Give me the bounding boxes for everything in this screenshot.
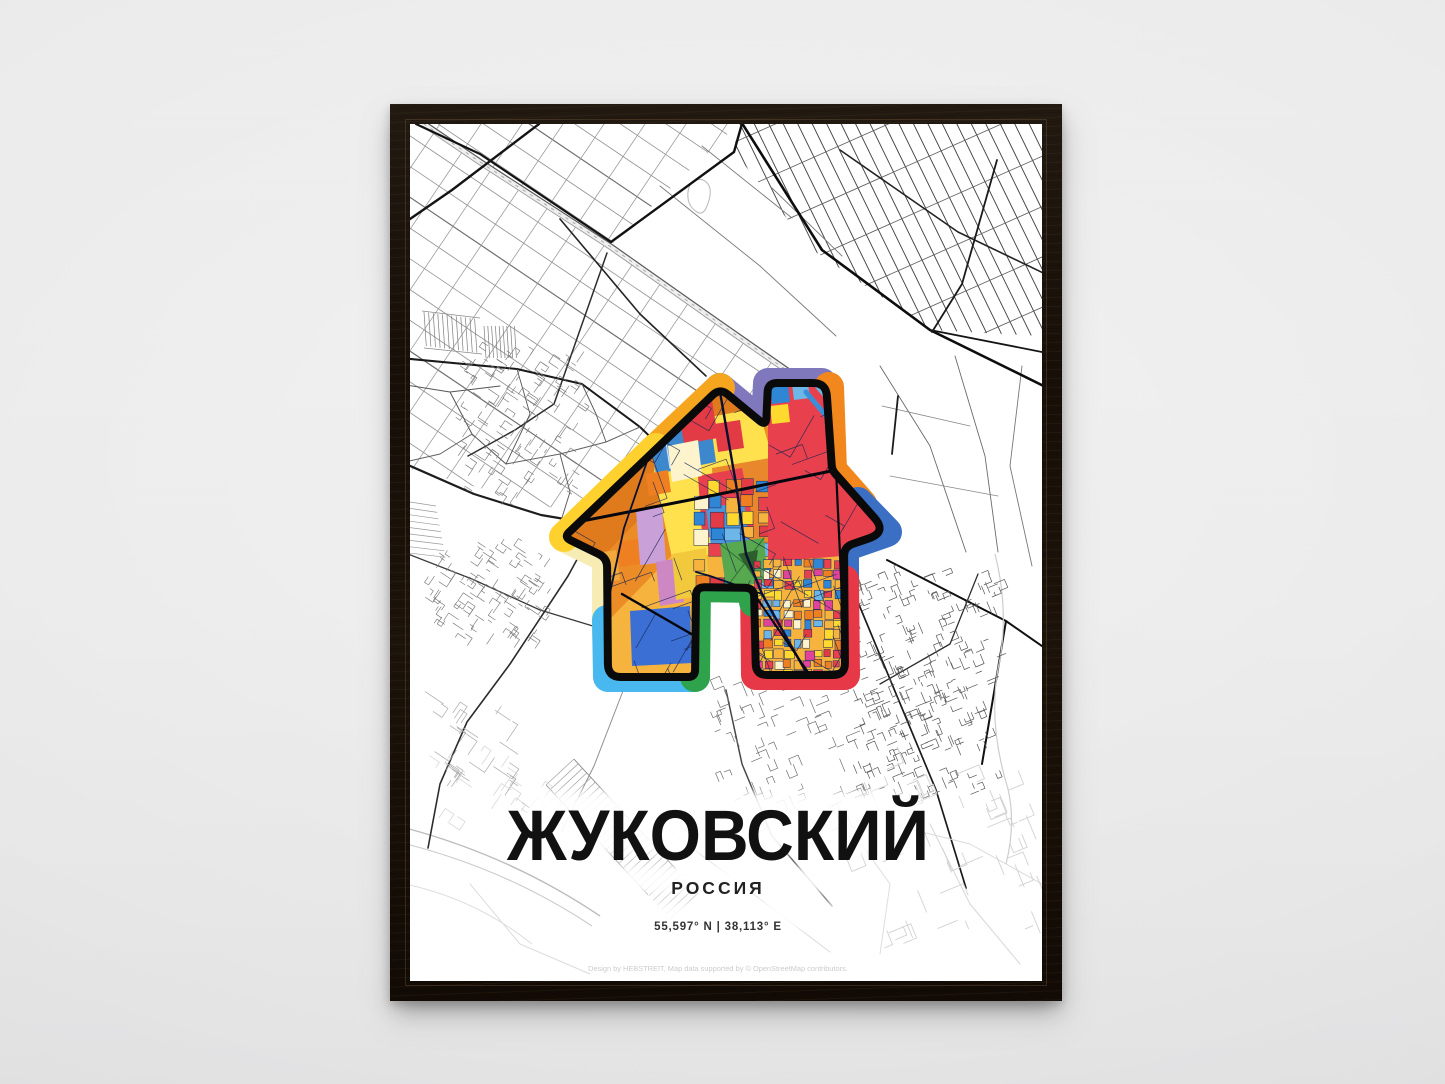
svg-text:Design by HEBSTREIT, Map data: Design by HEBSTREIT, Map data supported … <box>588 964 848 973</box>
svg-text:55,597° N | 38,113° E: 55,597° N | 38,113° E <box>654 921 782 933</box>
svg-text:РОССИЯ: РОССИЯ <box>671 878 765 898</box>
svg-text:ЖУКОВСКИЙ: ЖУКОВСКИЙ <box>506 796 929 876</box>
